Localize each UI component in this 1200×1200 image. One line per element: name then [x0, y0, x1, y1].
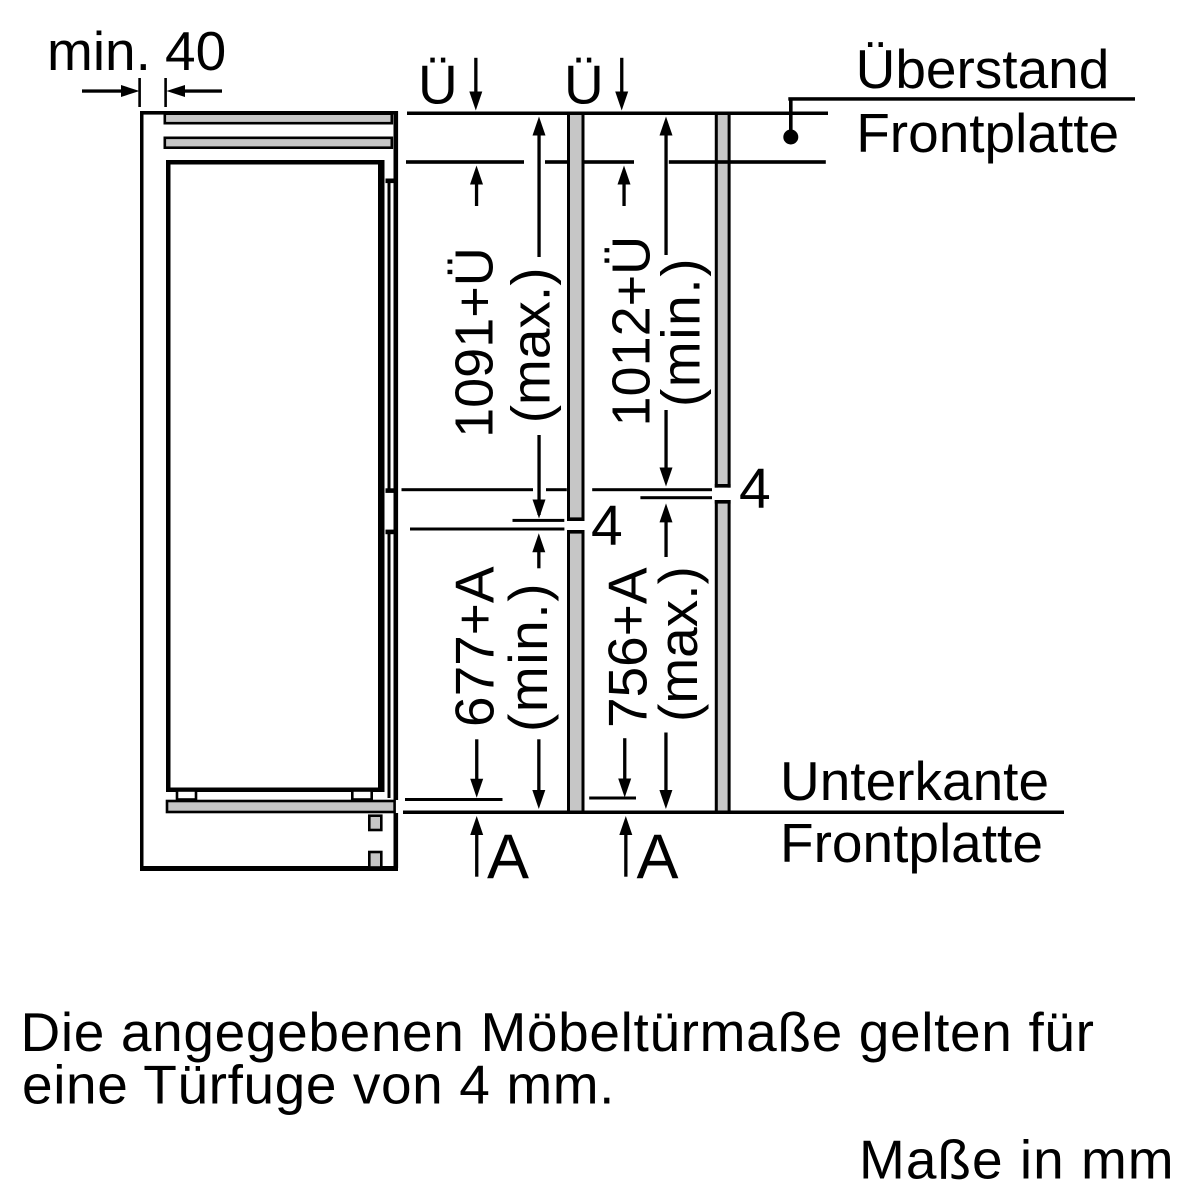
svg-text:(min.): (min.): [650, 257, 712, 407]
svg-text:677+A: 677+A: [444, 566, 506, 727]
svg-text:Maße in mm: Maße in mm: [859, 1129, 1175, 1191]
svg-text:4: 4: [739, 457, 771, 521]
svg-text:(max.): (max.): [647, 566, 709, 722]
svg-text:Unterkante: Unterkante: [780, 750, 1049, 812]
svg-text:min.: min.: [47, 20, 151, 82]
svg-text:Ü: Ü: [564, 53, 604, 115]
svg-text:Frontplatte: Frontplatte: [780, 812, 1043, 874]
svg-text:1091+Ü: 1091+Ü: [445, 247, 505, 438]
svg-text:eine Türfuge von 4 mm.: eine Türfuge von 4 mm.: [22, 1054, 615, 1116]
svg-text:A: A: [487, 822, 529, 892]
svg-text:4: 4: [591, 494, 623, 558]
svg-text:Frontplatte: Frontplatte: [856, 102, 1119, 164]
svg-text:(max.): (max.): [500, 267, 562, 423]
svg-text:40: 40: [165, 20, 226, 82]
svg-text:Überstand: Überstand: [856, 38, 1110, 100]
svg-text:A: A: [637, 822, 679, 892]
svg-text:(min.): (min.): [497, 582, 559, 732]
svg-text:Ü: Ü: [418, 53, 458, 115]
